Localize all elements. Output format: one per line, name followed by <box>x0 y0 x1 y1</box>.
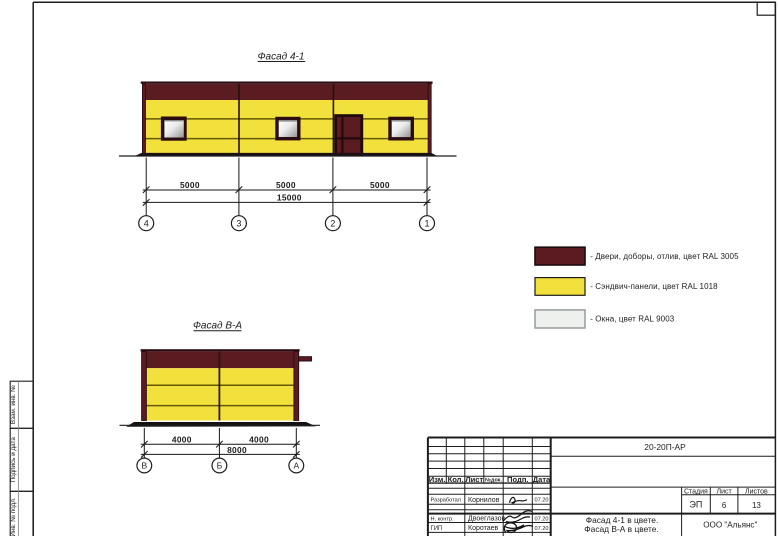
svg-text:Н. контр.: Н. контр. <box>431 516 455 522</box>
svg-text:07.20: 07.20 <box>535 516 549 522</box>
svg-text:Двоеглазов: Двоеглазов <box>468 516 505 523</box>
svg-text:13: 13 <box>752 501 761 510</box>
svg-text:Лист: Лист <box>465 475 483 484</box>
svg-text:4000: 4000 <box>249 435 269 445</box>
svg-text:1: 1 <box>424 218 429 228</box>
svg-text:5000: 5000 <box>276 180 296 190</box>
svg-text:Фасад В-А: Фасад В-А <box>193 321 242 332</box>
svg-text:Изм.: Изм. <box>429 475 446 484</box>
svg-text:3: 3 <box>236 218 241 228</box>
svg-text:ГИП: ГИП <box>431 526 443 532</box>
svg-text:- Сэндвич-панели, цвет RAL 101: - Сэндвич-панели, цвет RAL 1018 <box>590 282 718 291</box>
svg-text:- Окна, цвет RAL 9003: - Окна, цвет RAL 9003 <box>590 315 675 324</box>
svg-text:В: В <box>141 460 147 470</box>
svg-text:Дата: Дата <box>533 475 551 484</box>
svg-text:Листов: Листов <box>745 489 768 496</box>
svg-text:Лист: Лист <box>716 489 732 496</box>
svg-text:6: 6 <box>722 501 727 510</box>
svg-text:4: 4 <box>144 218 149 228</box>
svg-text:Фасад В-А в цвете.: Фасад В-А в цвете. <box>584 524 658 534</box>
svg-text:2: 2 <box>330 218 335 228</box>
svg-text:15000: 15000 <box>277 193 302 203</box>
svg-text:- Двери, доборы, отлив, цвет R: - Двери, доборы, отлив, цвет RAL 3005 <box>590 252 739 261</box>
svg-text:№док.: №док. <box>485 478 502 484</box>
svg-text:Подпись и дата: Подпись и дата <box>10 437 17 483</box>
svg-text:5000: 5000 <box>180 180 200 190</box>
svg-text:Коротаев: Коротаев <box>468 525 499 532</box>
svg-text:Стадия: Стадия <box>684 489 708 496</box>
svg-text:ЭП: ЭП <box>689 500 702 510</box>
svg-text:5000: 5000 <box>370 180 390 190</box>
svg-text:Подп.: Подп. <box>507 475 529 484</box>
svg-text:Б: Б <box>217 460 223 470</box>
svg-text:4000: 4000 <box>172 435 192 445</box>
svg-text:20-20П-АР: 20-20П-АР <box>644 442 686 452</box>
svg-text:Взам. инв. №: Взам. инв. № <box>10 385 17 424</box>
svg-text:Фасад 4-1: Фасад 4-1 <box>258 51 305 62</box>
svg-text:Разработал: Разработал <box>431 498 461 504</box>
svg-text:А: А <box>293 460 299 470</box>
svg-text:07.20: 07.20 <box>535 498 549 504</box>
svg-text:Инв. № подл.: Инв. № подл. <box>10 497 17 536</box>
svg-text:8000: 8000 <box>227 445 247 455</box>
svg-text:Корнилов: Корнилов <box>468 497 500 504</box>
svg-text:ООО "Альянс": ООО "Альянс" <box>703 520 757 529</box>
svg-text:Кол.: Кол. <box>448 475 464 484</box>
svg-text:07.20: 07.20 <box>535 526 549 532</box>
